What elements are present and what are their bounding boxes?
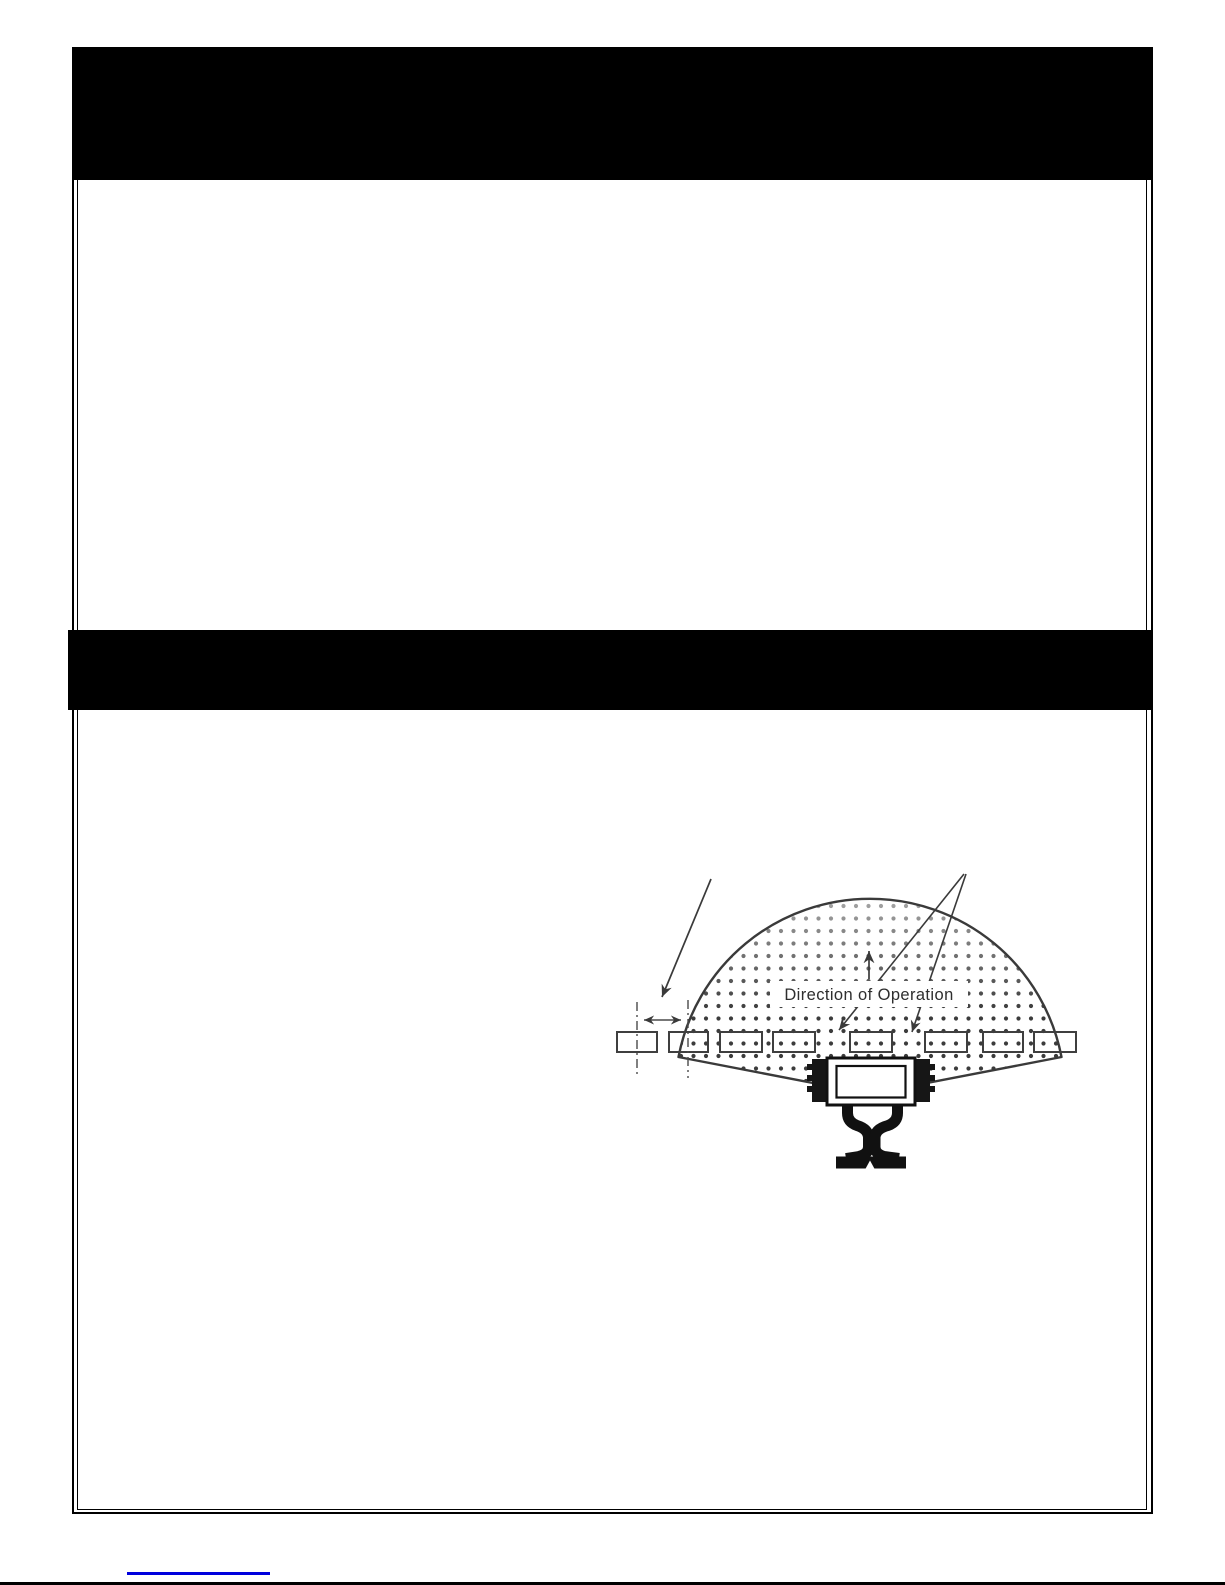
- rail-cross-section: [836, 1104, 906, 1163]
- direction-of-operation-label: Direction of Operation: [784, 986, 953, 1004]
- clamp-left: [812, 1059, 826, 1102]
- tie-spacing-leader-arrow: [662, 879, 711, 997]
- tie-spacing-dimension: [637, 1000, 688, 1078]
- clamp-tooth: [807, 1086, 812, 1092]
- clamp-tooth: [930, 1086, 935, 1092]
- clamp-right: [916, 1059, 930, 1102]
- rail-web-left: [846, 1104, 869, 1159]
- scanned-manual-page: Direction of Operation: [0, 0, 1225, 1585]
- footer-link-underline[interactable]: [127, 1572, 270, 1575]
- rail-sensor-detection-figure: Direction of Operation: [0, 0, 1225, 1585]
- clamp-tooth: [930, 1075, 935, 1081]
- clamp-tooth: [807, 1075, 812, 1081]
- clamp-tooth: [807, 1064, 812, 1070]
- rail-web-right: [875, 1104, 899, 1159]
- clamp-tooth: [930, 1064, 935, 1070]
